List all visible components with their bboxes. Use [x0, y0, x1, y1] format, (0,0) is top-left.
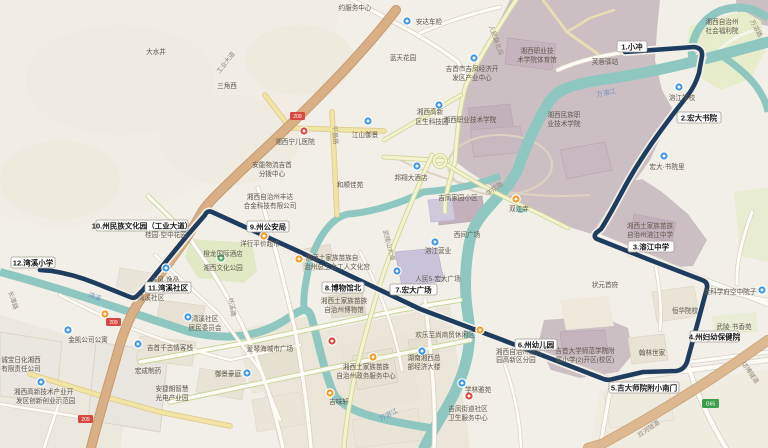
svg-text:西间广场: 西间广场: [454, 230, 481, 239]
svg-text:合金科技有限公司: 合金科技有限公司: [244, 201, 297, 210]
svg-text:10.州民族文化园（工业大道）: 10.州民族文化园（工业大道）: [92, 221, 192, 231]
svg-text:双江寺: 双江寺: [509, 205, 529, 213]
svg-text:约服务中心: 约服务中心: [339, 3, 372, 12]
svg-text:金凯公司公寓: 金凯公司公寓: [68, 335, 108, 344]
svg-text:209: 209: [81, 417, 90, 423]
svg-text:光电产业园: 光电产业园: [156, 393, 189, 402]
svg-text:G65: G65: [706, 402, 716, 408]
svg-text:和顺佳苑: 和顺佳苑: [337, 180, 364, 189]
svg-text:湘西民族职: 湘西民族职: [548, 110, 581, 119]
svg-text:209: 209: [293, 114, 302, 120]
svg-text:学林雅苑: 学林雅苑: [465, 385, 492, 394]
svg-text:芙蓉驿站: 芙蓉驿站: [592, 57, 619, 66]
svg-text:209: 209: [109, 320, 118, 326]
svg-text:湘西职业技: 湘西职业技: [521, 46, 554, 55]
svg-text:翰林世家: 翰林世家: [639, 348, 666, 357]
svg-text:溶江学校: 溶江学校: [669, 93, 696, 102]
svg-text:湾溪社区: 湾溪社区: [192, 314, 219, 323]
svg-text:社会福利院: 社会福利院: [706, 26, 739, 35]
svg-text:湘西高新: 湘西高新: [417, 107, 444, 116]
svg-text:湘西自治州: 湘西自治州: [706, 17, 739, 26]
svg-text:11.湾溪社区: 11.湾溪社区: [148, 283, 189, 293]
svg-text:湘西宁儿医院: 湘西宁儿医院: [275, 137, 315, 146]
svg-text:爱琴海城市广场: 爱琴海城市广场: [247, 344, 294, 353]
svg-text:1.小冲: 1.小冲: [621, 42, 643, 52]
svg-text:9.州公安局: 9.州公安局: [250, 222, 286, 232]
svg-text:湘西土家族苗族: 湘西土家族苗族: [343, 362, 390, 371]
svg-text:自治州溶江中学: 自治州溶江中学: [627, 230, 674, 239]
svg-text:2.宏大书院: 2.宏大书院: [681, 113, 718, 123]
svg-text:12.湾溪小学: 12.湾溪小学: [13, 258, 54, 268]
svg-text:邦翔大酒店: 邦翔大酒店: [395, 173, 428, 182]
svg-text:宏大·书院里: 宏大·书院里: [649, 162, 685, 171]
svg-text:人民5·宏大广场: 人民5·宏大广场: [415, 274, 461, 283]
svg-text:湘西职业技术学院: 湘西职业技术学院: [444, 115, 497, 124]
svg-text:居民委员会: 居民委员会: [189, 323, 222, 332]
svg-text:湾溪社区: 湾溪社区: [138, 293, 165, 302]
svg-text:自治州政务服务中心: 自治州政务服务中心: [336, 371, 396, 380]
svg-text:橙龙国际酒店: 橙龙国际酒店: [203, 249, 243, 258]
svg-text:江山御景: 江山御景: [352, 130, 379, 139]
svg-text:吉凤家园小区: 吉凤家园小区: [438, 193, 478, 202]
svg-text:状元首府: 状元首府: [592, 280, 619, 289]
svg-text:4.州妇幼保健院: 4.州妇幼保健院: [689, 332, 741, 342]
svg-text:6.州幼儿园: 6.州幼儿园: [518, 340, 555, 350]
svg-text:大水井: 大水井: [146, 47, 166, 56]
svg-text:御景豪庭: 御景豪庭: [215, 369, 242, 378]
svg-text:湘西高新技术产业开: 湘西高新技术产业开: [14, 387, 74, 396]
svg-text:吉首市吉凤经济开: 吉首市吉凤经济开: [446, 64, 499, 73]
svg-text:7.宏大广场: 7.宏大广场: [395, 285, 432, 295]
svg-text:吉首大学师范学院附: 吉首大学师范学院附: [555, 346, 615, 355]
svg-text:三角西: 三角西: [217, 81, 237, 90]
svg-text:5.吉大师院附小南门: 5.吉大师院附小南门: [611, 383, 677, 393]
svg-text:安捷朗智慧: 安捷朗智慧: [156, 384, 189, 393]
svg-text:发区创新创业示范园: 发区创新创业示范园: [16, 396, 76, 405]
svg-text:3.溶江中学: 3.溶江中学: [633, 242, 670, 252]
svg-text:有限责任公司: 有限责任公司: [1, 364, 41, 373]
svg-text:吉味轩: 吉味轩: [329, 397, 349, 406]
svg-text:湖南湘西总: 湖南湘西总: [408, 353, 441, 362]
svg-text:治州总工会工人文化宫: 治州总工会工人文化宫: [304, 262, 370, 271]
svg-text:欢乐至尚商贸休闲区: 欢乐至尚商贸休闲区: [415, 330, 475, 339]
svg-text:湘西自治州丰达: 湘西自治州丰达: [247, 192, 294, 201]
svg-text:卫生服务中心: 卫生服务中心: [448, 413, 488, 422]
svg-text:湘西土家族苗族自: 湘西土家族苗族自: [306, 253, 359, 262]
svg-text:自治州博物馆: 自治州博物馆: [324, 305, 364, 314]
svg-text:武陵·书香苑: 武陵·书香苑: [716, 322, 752, 331]
svg-text:园高新区分园: 园高新区分园: [496, 355, 536, 364]
svg-text:湘西文化公园: 湘西文化公园: [203, 263, 243, 272]
svg-text:洋行平价超市: 洋行平价超市: [240, 239, 280, 248]
svg-text:业技术学院: 业技术学院: [548, 119, 581, 128]
svg-text:安能物流吉首: 安能物流吉首: [252, 160, 292, 169]
svg-text:8.博物馆北: 8.博物馆北: [325, 283, 362, 293]
svg-text:吉凤街道社区: 吉凤街道社区: [448, 404, 488, 413]
svg-text:属小学(2)开区(校区): 属小学(2)开区(校区): [556, 355, 615, 364]
svg-text:术学院体育馆: 术学院体育馆: [517, 55, 557, 64]
svg-text:溶江营业: 溶江营业: [425, 246, 452, 255]
svg-text:诚宝日化湘西: 诚宝日化湘西: [1, 355, 41, 364]
svg-text:恒华院校: 恒华院校: [672, 306, 699, 315]
svg-text:发区产业中心: 发区产业中心: [452, 73, 492, 82]
svg-text:宏成制药: 宏成制药: [135, 366, 162, 375]
svg-text:安达车检: 安达车检: [416, 17, 443, 26]
svg-text:部经济大楼: 部经济大楼: [408, 362, 441, 371]
svg-text:分拨中心: 分拨中心: [259, 169, 286, 178]
svg-text:湘西土家族苗族: 湘西土家族苗族: [321, 296, 368, 305]
svg-text:蓝天花园: 蓝天花园: [390, 53, 417, 62]
svg-text:吉首千古情客栈: 吉首千古情客栈: [147, 343, 194, 352]
svg-text:湘西土家族苗族: 湘西土家族苗族: [627, 221, 674, 230]
svg-text:金科学府空中院子: 金科学府空中院子: [704, 287, 757, 296]
